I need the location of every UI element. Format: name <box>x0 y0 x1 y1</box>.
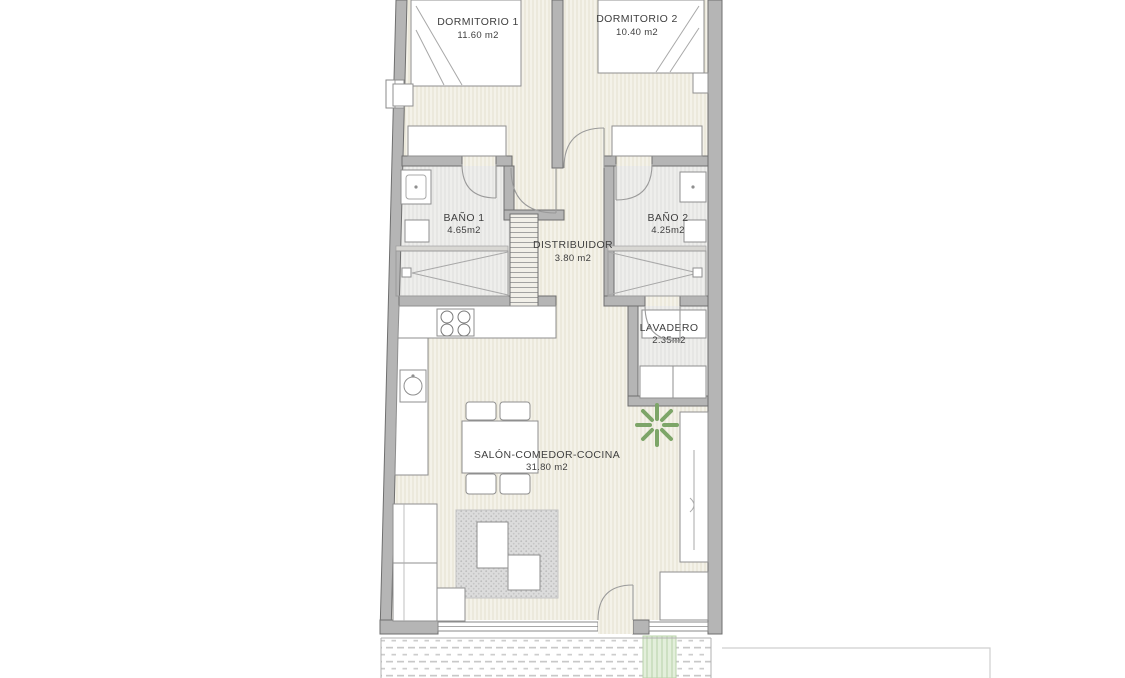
floor-plan-page: DORMITORIO 1 11.60 m2 DORMITORIO 2 10.40… <box>0 0 1125 678</box>
bathroom1-right-wall <box>504 166 514 214</box>
laundry-top-wall-b <box>680 296 708 306</box>
sink-faucet-dot <box>414 185 417 188</box>
laundry-top-wall-a <box>604 296 645 306</box>
room-label: BAÑO 1 <box>444 211 485 224</box>
exterior-wall-bottom-left <box>380 620 438 634</box>
terrace <box>381 636 990 678</box>
room-area: 10.40 m2 <box>616 27 658 38</box>
laundry-left-wall <box>628 306 638 402</box>
shower-curb <box>608 246 706 251</box>
coffee-table-icon <box>477 522 508 568</box>
washer-icon <box>640 366 673 398</box>
wardrobe-icon <box>612 126 702 156</box>
bedroom1-bath-wall-a <box>402 156 462 166</box>
sideboard-icon <box>660 572 708 620</box>
room-dormitorio-1: DORMITORIO 1 11.60 m2 <box>393 0 521 156</box>
terrace-door-floor <box>598 620 633 634</box>
room-area: 4.65m2 <box>447 225 481 236</box>
exterior-wall-right <box>708 0 722 634</box>
room-label: BAÑO 2 <box>648 211 689 224</box>
kitchen-counter-left <box>395 338 428 475</box>
dining-set <box>462 402 538 494</box>
sofa-icon <box>393 504 437 621</box>
bedroom2-bath-wall-b <box>652 156 708 166</box>
dryer-icon <box>673 366 706 398</box>
bed-icon <box>411 0 521 86</box>
room-area: 3.80 m2 <box>555 253 591 264</box>
room-label: DISTRIBUIDOR <box>533 239 613 251</box>
room-label: DORMITORIO 1 <box>437 16 519 28</box>
dining-chair-icon <box>500 474 530 494</box>
dining-chair-icon <box>466 402 496 420</box>
floor-plan-canvas: DORMITORIO 1 11.60 m2 DORMITORIO 2 10.40… <box>0 0 1125 678</box>
room-area: 11.60 m2 <box>457 30 498 41</box>
dining-chair-icon <box>466 474 496 494</box>
plot-boundary-line <box>722 648 990 678</box>
tall-cabinet-icon <box>680 412 708 562</box>
wardrobe-icon <box>408 126 506 156</box>
room-label: DORMITORIO 2 <box>596 13 678 25</box>
nightstand-icon <box>393 84 413 106</box>
nightstand-icon <box>693 73 708 93</box>
kitchen-counter-top <box>398 306 556 338</box>
end-table-icon <box>437 588 465 621</box>
toilet-icon <box>405 220 429 242</box>
room-area: 31.80 m2 <box>526 462 568 473</box>
shower-curb <box>396 246 508 251</box>
side-table-icon <box>508 555 540 590</box>
bathroom2-left-wall <box>604 166 614 306</box>
sink-faucet-dot <box>691 185 694 188</box>
room-label: SALÓN-COMEDOR-COCINA <box>474 448 620 461</box>
lawn-strip <box>643 636 676 678</box>
bedroom2-bath-wall-a <box>604 156 616 166</box>
exterior-wall-bottom-mid <box>633 620 649 634</box>
bedroom1-bath-wall-b <box>496 156 512 166</box>
dining-chair-icon <box>500 402 530 420</box>
room-area: 4.25m2 <box>651 225 685 236</box>
kitchen-sink-icon <box>400 370 426 402</box>
duct-shaft <box>510 214 538 306</box>
bedroom-divider-wall <box>552 0 563 168</box>
stove-icon <box>437 309 474 336</box>
